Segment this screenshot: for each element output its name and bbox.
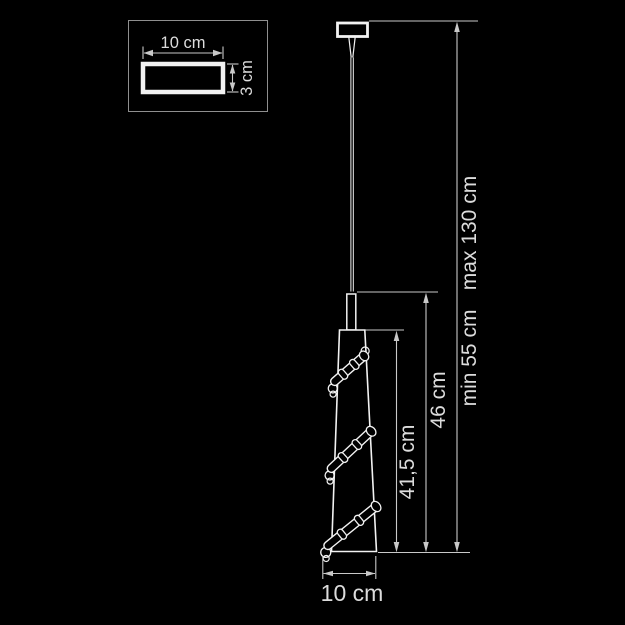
- cord-grip: [349, 37, 355, 58]
- detail-width-dimension: 10 cm: [143, 34, 223, 59]
- arrow-down-icon: [423, 542, 429, 552]
- detail-width-label: 10 cm: [161, 34, 206, 52]
- arrow-up-icon: [454, 22, 460, 32]
- arrow-left-icon: [144, 50, 154, 57]
- detail-height-dimension: 3 cm: [227, 60, 256, 96]
- arrow-up-icon: [230, 65, 236, 74]
- pendant-lamp: [315, 23, 387, 563]
- canopy-top-view: [143, 64, 223, 92]
- overall-length-dimension: min 55 cm max 130 cm: [454, 22, 481, 552]
- shade-length-label: 41,5 cm: [396, 425, 419, 500]
- canopy-detail-inset: 10 cm 3 cm: [129, 21, 268, 112]
- diameter-label: 10 cm: [321, 580, 384, 606]
- body-length-dimension: 46 cm: [423, 293, 450, 552]
- diameter-dimension: 10 cm: [321, 556, 384, 606]
- arrow-right-icon: [213, 50, 223, 57]
- socket-tube: [347, 294, 356, 330]
- arrow-down-icon: [394, 542, 400, 552]
- arrow-up-icon: [423, 293, 429, 303]
- ceiling-canopy: [338, 23, 368, 37]
- suspension-cord: [351, 58, 353, 292]
- shade-length-dimension: 41,5 cm: [394, 331, 419, 552]
- arrow-down-icon: [454, 542, 460, 552]
- body-length-label: 46 cm: [427, 371, 450, 428]
- max-length-label: max 130 cm: [458, 176, 481, 290]
- arrow-down-icon: [230, 83, 236, 92]
- min-length-label: min 55 cm: [458, 310, 481, 407]
- arrow-up-icon: [394, 331, 400, 341]
- arrow-right-icon: [366, 571, 375, 577]
- drawing-canvas: 10 cm 3 cm: [0, 0, 625, 625]
- vertical-dimensions: min 55 cm max 130 cm 46 cm 41,5 cm: [357, 21, 481, 553]
- detail-height-label: 3 cm: [238, 60, 256, 96]
- lamp-dimension-drawing: 10 cm 3 cm: [0, 0, 625, 625]
- arrow-left-icon: [323, 571, 333, 577]
